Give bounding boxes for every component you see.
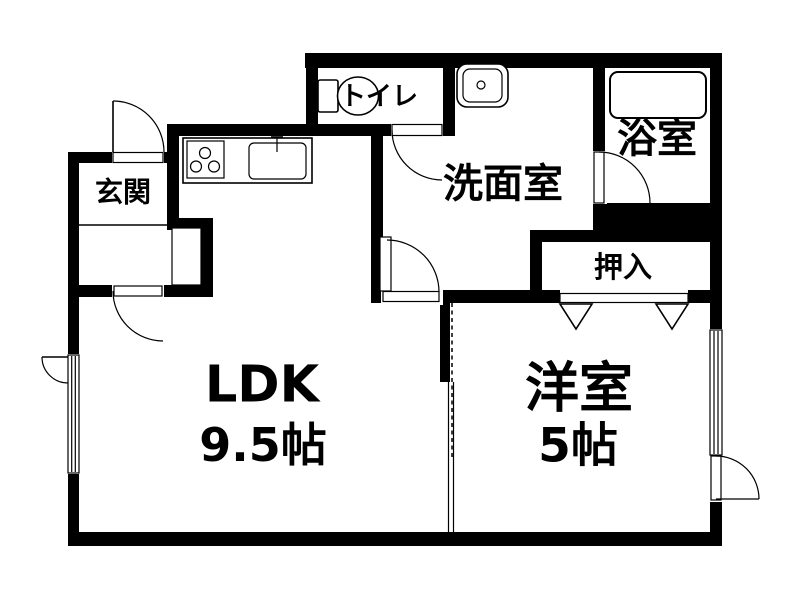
genkan-ldk-door-leaf (114, 286, 162, 296)
closet-label: 押入 (594, 250, 652, 284)
genkan-label: 玄関 (95, 176, 151, 209)
wall-toilet-right (443, 53, 455, 136)
stove-burner-icon (209, 161, 220, 172)
stove-burner-icon (200, 148, 211, 159)
wall-closet-top (530, 230, 712, 242)
wall-divider-stub (440, 297, 450, 382)
wall-bathroom-bottom (593, 203, 722, 232)
shoe-cabinet (172, 228, 201, 285)
wall-openings (66, 122, 724, 502)
toilet-label: トイレ (340, 82, 418, 112)
window-right-frame (710, 330, 722, 455)
floor-plan-page: 玄関 トイレ 洗面室 浴室 押入 LDK 9.5帖 洋室 5帖 (0, 0, 800, 600)
closet-doors (560, 294, 688, 330)
western-label: 洋室 (525, 357, 633, 420)
window-left-casement-arc (42, 357, 68, 383)
closet-door-track (560, 294, 688, 303)
closet-door-triangle (560, 304, 592, 329)
washbasin-drain-icon (477, 81, 485, 89)
stove-burner-icon (191, 161, 202, 172)
western-size-label: 5帖 (538, 419, 618, 474)
wall-toilet-left (306, 53, 318, 136)
entrance-door-arc (113, 101, 164, 152)
western-door-leaf (711, 456, 721, 500)
toilet-tank-icon (318, 80, 338, 112)
bath-door-leaf (594, 152, 604, 203)
ldk-size-label: 9.5帖 (199, 418, 327, 472)
genkan-details (79, 225, 201, 285)
ldk-label: LDK (205, 356, 322, 415)
toilet-door-leaf (392, 125, 442, 136)
washroom-door-leaf (380, 237, 391, 291)
bathtub-icon (610, 72, 706, 118)
stove-icon (187, 141, 224, 178)
entrance-threshold (113, 153, 163, 163)
washroom-label: 洗面室 (443, 161, 563, 207)
window-left-frame (68, 355, 79, 473)
closet-door-triangle (656, 304, 688, 329)
wall-genkan-right (167, 124, 179, 230)
floor-plan: 玄関 トイレ 洗面室 浴室 押入 LDK 9.5帖 洋室 5帖 (0, 0, 800, 600)
wall-top (305, 53, 722, 68)
washroom-door-arc (387, 240, 439, 292)
washroom-threshold (383, 292, 439, 302)
wall-left (68, 152, 79, 532)
bathroom-label: 浴室 (617, 116, 697, 162)
wall-bottom (68, 532, 722, 546)
wall-bathroom-left (593, 53, 605, 152)
